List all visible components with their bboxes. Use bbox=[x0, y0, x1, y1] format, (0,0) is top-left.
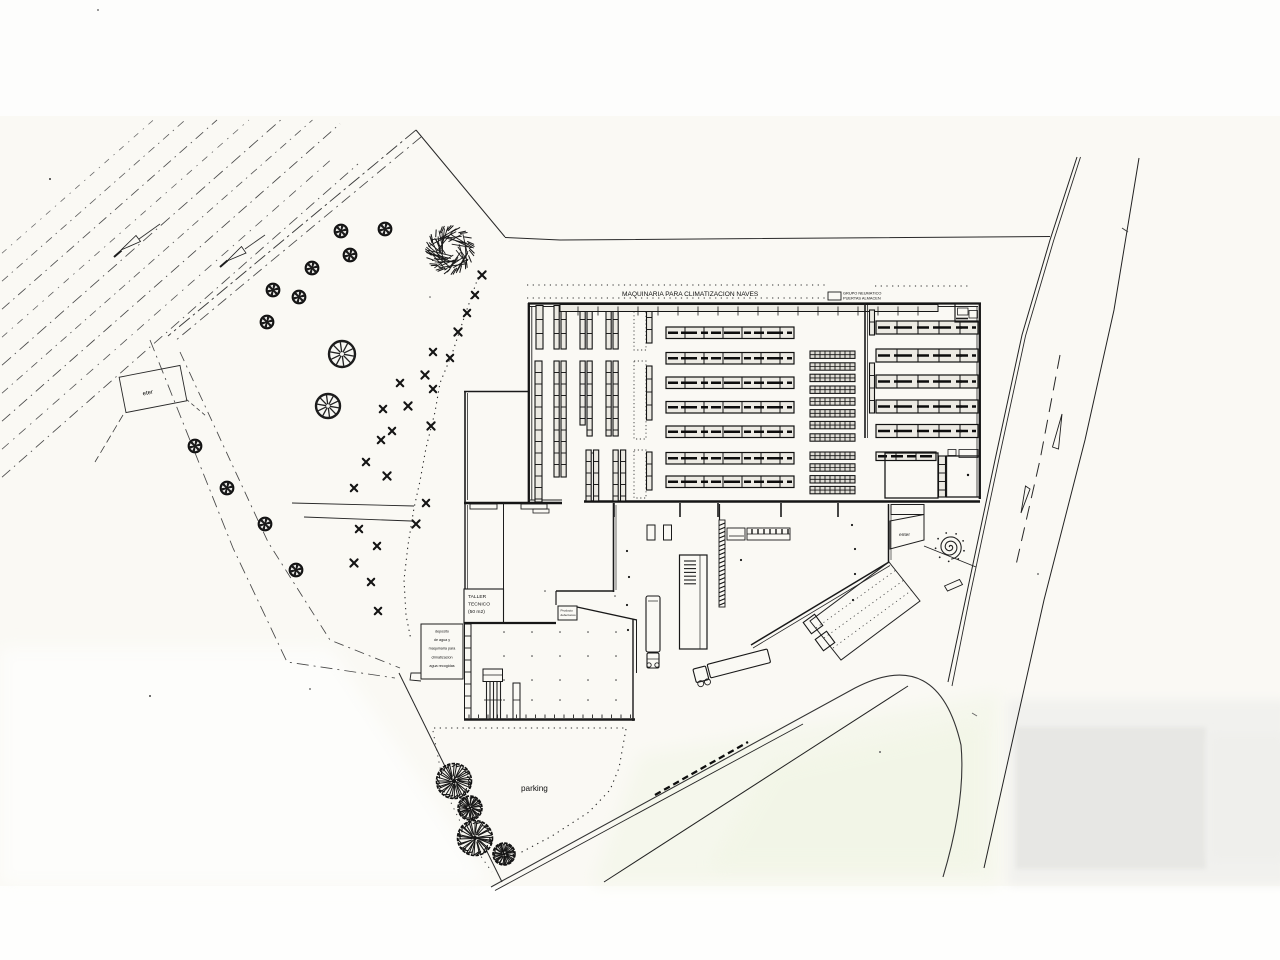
svg-text:de agua y: de agua y bbox=[434, 638, 450, 642]
svg-text:agua recogidas: agua recogidas bbox=[429, 664, 454, 668]
svg-text:deposito: deposito bbox=[435, 630, 449, 634]
svg-text:PUERTAS ALMACEN: PUERTAS ALMACEN bbox=[843, 296, 881, 301]
svg-text:TALLER: TALLER bbox=[468, 594, 487, 600]
svg-text:parking: parking bbox=[521, 784, 548, 793]
svg-text:TECNICO: TECNICO bbox=[468, 602, 490, 608]
svg-text:climatizacion: climatizacion bbox=[431, 655, 452, 659]
svg-text:enter: enter bbox=[899, 532, 910, 538]
svg-text:defectuoso: defectuoso bbox=[561, 613, 576, 617]
svg-text:MAQUINARIA PARA CLIMATIZACION: MAQUINARIA PARA CLIMATIZACION NAVES bbox=[622, 291, 759, 298]
svg-text:Producto: Producto bbox=[561, 609, 574, 613]
svg-text:(50 m2): (50 m2) bbox=[468, 609, 485, 615]
svg-text:maquinaria para: maquinaria para bbox=[429, 647, 457, 651]
